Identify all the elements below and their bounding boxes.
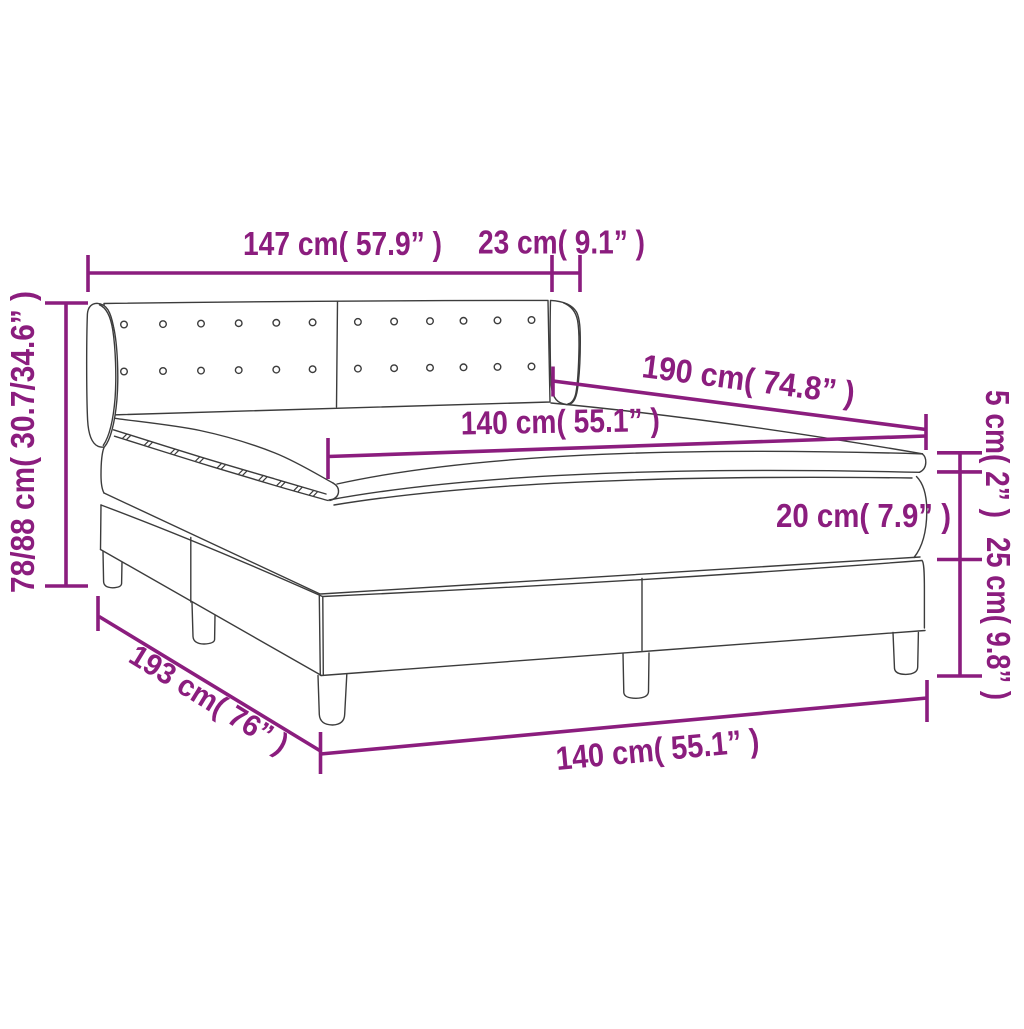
svg-text:25 cm( 9.8” ): 25 cm( 9.8” ) [980, 537, 1017, 700]
svg-text:78/88 cm( 30.7/34.6” ): 78/88 cm( 30.7/34.6” ) [4, 291, 41, 593]
svg-text:140 cm( 55.1” ): 140 cm( 55.1” ) [460, 401, 660, 441]
svg-text:5 cm( 2” ): 5 cm( 2” ) [979, 390, 1016, 518]
svg-text:20 cm( 7.9” ): 20 cm( 7.9” ) [776, 497, 951, 534]
svg-text:147 cm( 57.9” ): 147 cm( 57.9” ) [243, 225, 442, 262]
svg-text:23 cm( 9.1” ): 23 cm( 9.1” ) [478, 224, 645, 261]
